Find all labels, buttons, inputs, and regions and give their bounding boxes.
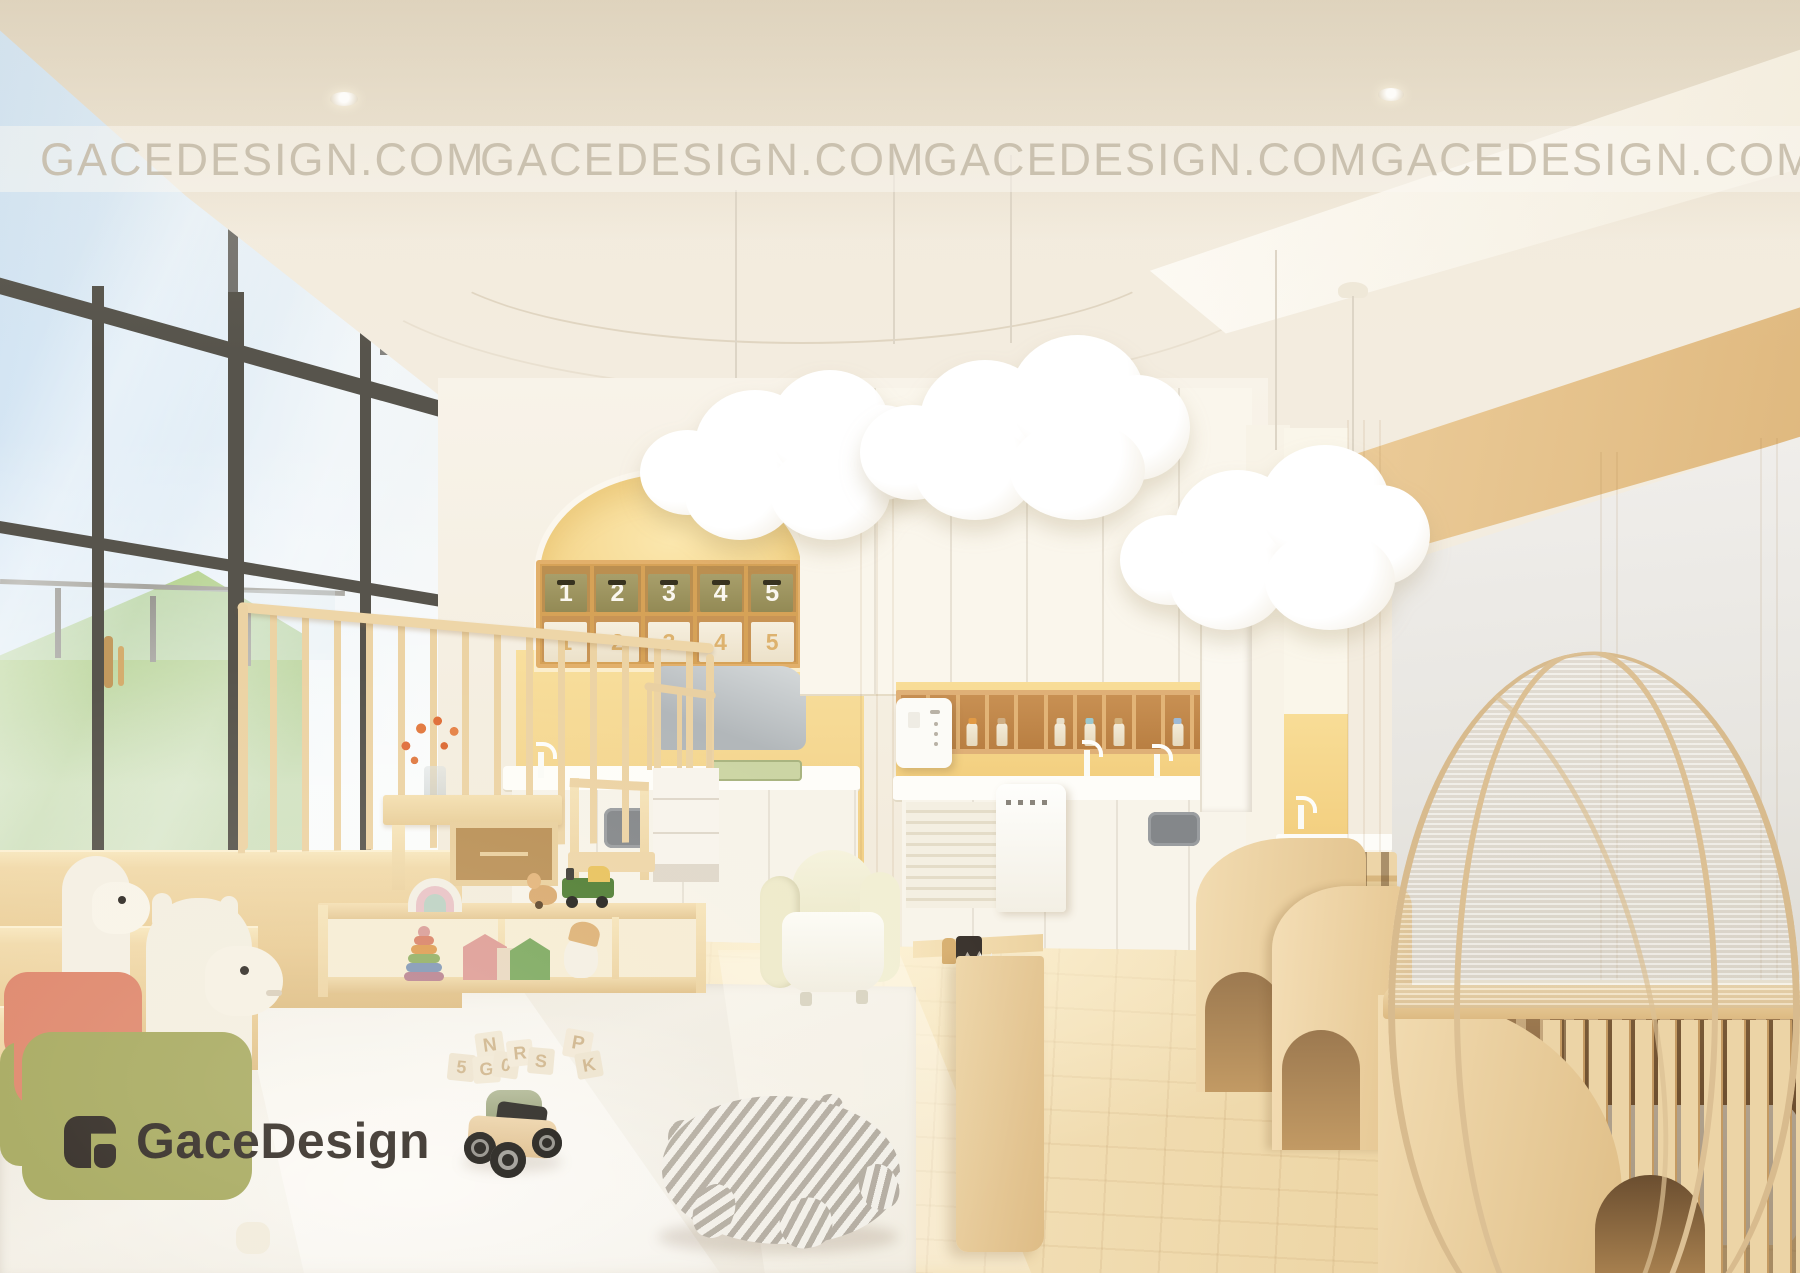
bottle-cap: [968, 718, 976, 724]
downlight-icon: [1378, 88, 1404, 101]
box-handle-slot-icon: [712, 580, 730, 585]
bottle-cap: [1086, 718, 1094, 724]
brand-logo: GaceDesign: [64, 1110, 424, 1174]
faucet-icon: [1082, 740, 1108, 780]
bench-toy-bottle: [942, 938, 956, 964]
kids-armchair: [760, 850, 902, 1008]
baby-bottle: [1172, 723, 1183, 746]
watermark-band: GACEDESIGN.COM GACEDESIGN.COM GACEDESIGN…: [0, 126, 1800, 192]
toy-block: S: [527, 1047, 555, 1075]
lamp-cord: [1275, 250, 1277, 450]
machine-dial-icon: [930, 710, 940, 714]
bottle-cap: [1115, 718, 1123, 724]
crib-mesh-dome: [1388, 648, 1800, 1008]
downlight-icon: [330, 92, 358, 106]
arch-stacker-toy: [408, 878, 462, 912]
chair-top-bar: [570, 778, 649, 791]
box-handle-slot-icon: [763, 580, 781, 585]
sterilizer-controls-icon[interactable]: [1006, 800, 1050, 805]
cubby-cell: 5: [748, 566, 796, 612]
door-handle[interactable]: [118, 646, 124, 686]
baby-bottle: [967, 723, 978, 746]
lamp-cord: [1352, 296, 1354, 458]
stairs-post: [707, 694, 712, 774]
lamp-cord: [735, 190, 737, 378]
play-table: [383, 795, 562, 825]
train-toy: [562, 866, 614, 908]
toy-block: K: [574, 1050, 604, 1080]
baby-bottle: [1055, 723, 1066, 746]
bottle-cell: [1018, 695, 1043, 749]
door-handle[interactable]: [104, 636, 113, 688]
watermark-text: GACEDESIGN.COM: [1370, 134, 1800, 186]
box-handle-slot-icon: [608, 580, 626, 585]
railing-post: [238, 604, 248, 850]
bench-side-panel: [956, 956, 1044, 1252]
baby-bottle: [1113, 723, 1124, 746]
box-handle-slot-icon: [557, 580, 575, 585]
storage-box-cream[interactable]: 5: [751, 622, 794, 662]
car-wheel-icon: [490, 1142, 526, 1178]
nursery-interior-render: 1 2 3 4 5 1 2 3 4 5: [0, 0, 1800, 1273]
cloud-lamp: [1120, 440, 1430, 640]
letter-blocks: N 5 G 0 R S P K: [446, 1026, 606, 1086]
shelf-side-panel: [318, 905, 328, 997]
machine-dot-icon: [934, 742, 938, 746]
machine-dot-icon: [934, 732, 938, 736]
cubby-cell: 5: [748, 616, 796, 662]
flower-cluster: [398, 714, 464, 772]
toy-car: [462, 1090, 562, 1174]
duck-toy: [527, 873, 559, 909]
milk-prep-machine[interactable]: [896, 698, 952, 768]
brand-logo-text: GaceDesign: [136, 1112, 430, 1170]
bottle-cell: [989, 695, 1014, 749]
machine-button[interactable]: [908, 712, 920, 728]
crib-domed: [1378, 640, 1800, 1273]
stairs-post: [677, 690, 682, 772]
faucet-icon: [1296, 796, 1320, 834]
armchair-leg: [800, 992, 812, 1006]
hippo-plush: [648, 1080, 908, 1260]
watermark-text: GACEDESIGN.COM: [480, 134, 926, 186]
faucet-icon: [1152, 744, 1178, 782]
bottle-cell: [1136, 695, 1161, 749]
car-wheel-icon: [532, 1128, 562, 1158]
box-number: 5: [766, 629, 779, 656]
shelf-side-panel: [696, 903, 706, 993]
table-leg: [392, 825, 405, 890]
stairs-body: [653, 768, 719, 882]
bottle-cap: [1174, 718, 1182, 724]
shelf-top-board: [318, 903, 706, 919]
crib-leg-arch: [1282, 1030, 1360, 1150]
armchair-leg: [856, 990, 868, 1004]
box-handle-slot-icon: [660, 580, 678, 585]
bottle-cell: [1106, 695, 1131, 749]
shelf-divider: [612, 917, 619, 979]
gace-monogram-icon: [64, 1116, 116, 1168]
rainbow-stacker-toy: [404, 926, 444, 980]
armchair-seat: [782, 912, 884, 992]
baby-bottle: [996, 723, 1007, 746]
stairs-post: [647, 686, 652, 770]
toy-figure: [560, 922, 602, 978]
storage-box-olive[interactable]: 5: [751, 574, 793, 612]
watermark-text: GACEDESIGN.COM: [40, 134, 486, 186]
bottle-cell: [1165, 695, 1190, 749]
bottle-cap: [998, 718, 1006, 724]
alpaca-plush-front: [0, 890, 290, 1256]
watermark-text: GACEDESIGN.COM: [923, 134, 1369, 186]
machine-dot-icon: [934, 722, 938, 726]
bottle-cell: [1048, 695, 1073, 749]
cabinet-recessed-handle[interactable]: [1148, 812, 1200, 846]
bottle-sterilizer[interactable]: [996, 784, 1066, 912]
bottle-cell: [960, 695, 985, 749]
box-number: 4: [714, 629, 727, 656]
crib-leg-arch: [1205, 972, 1282, 1092]
bottle-cap: [1056, 718, 1064, 724]
louvered-cabinet-door[interactable]: [906, 802, 998, 908]
